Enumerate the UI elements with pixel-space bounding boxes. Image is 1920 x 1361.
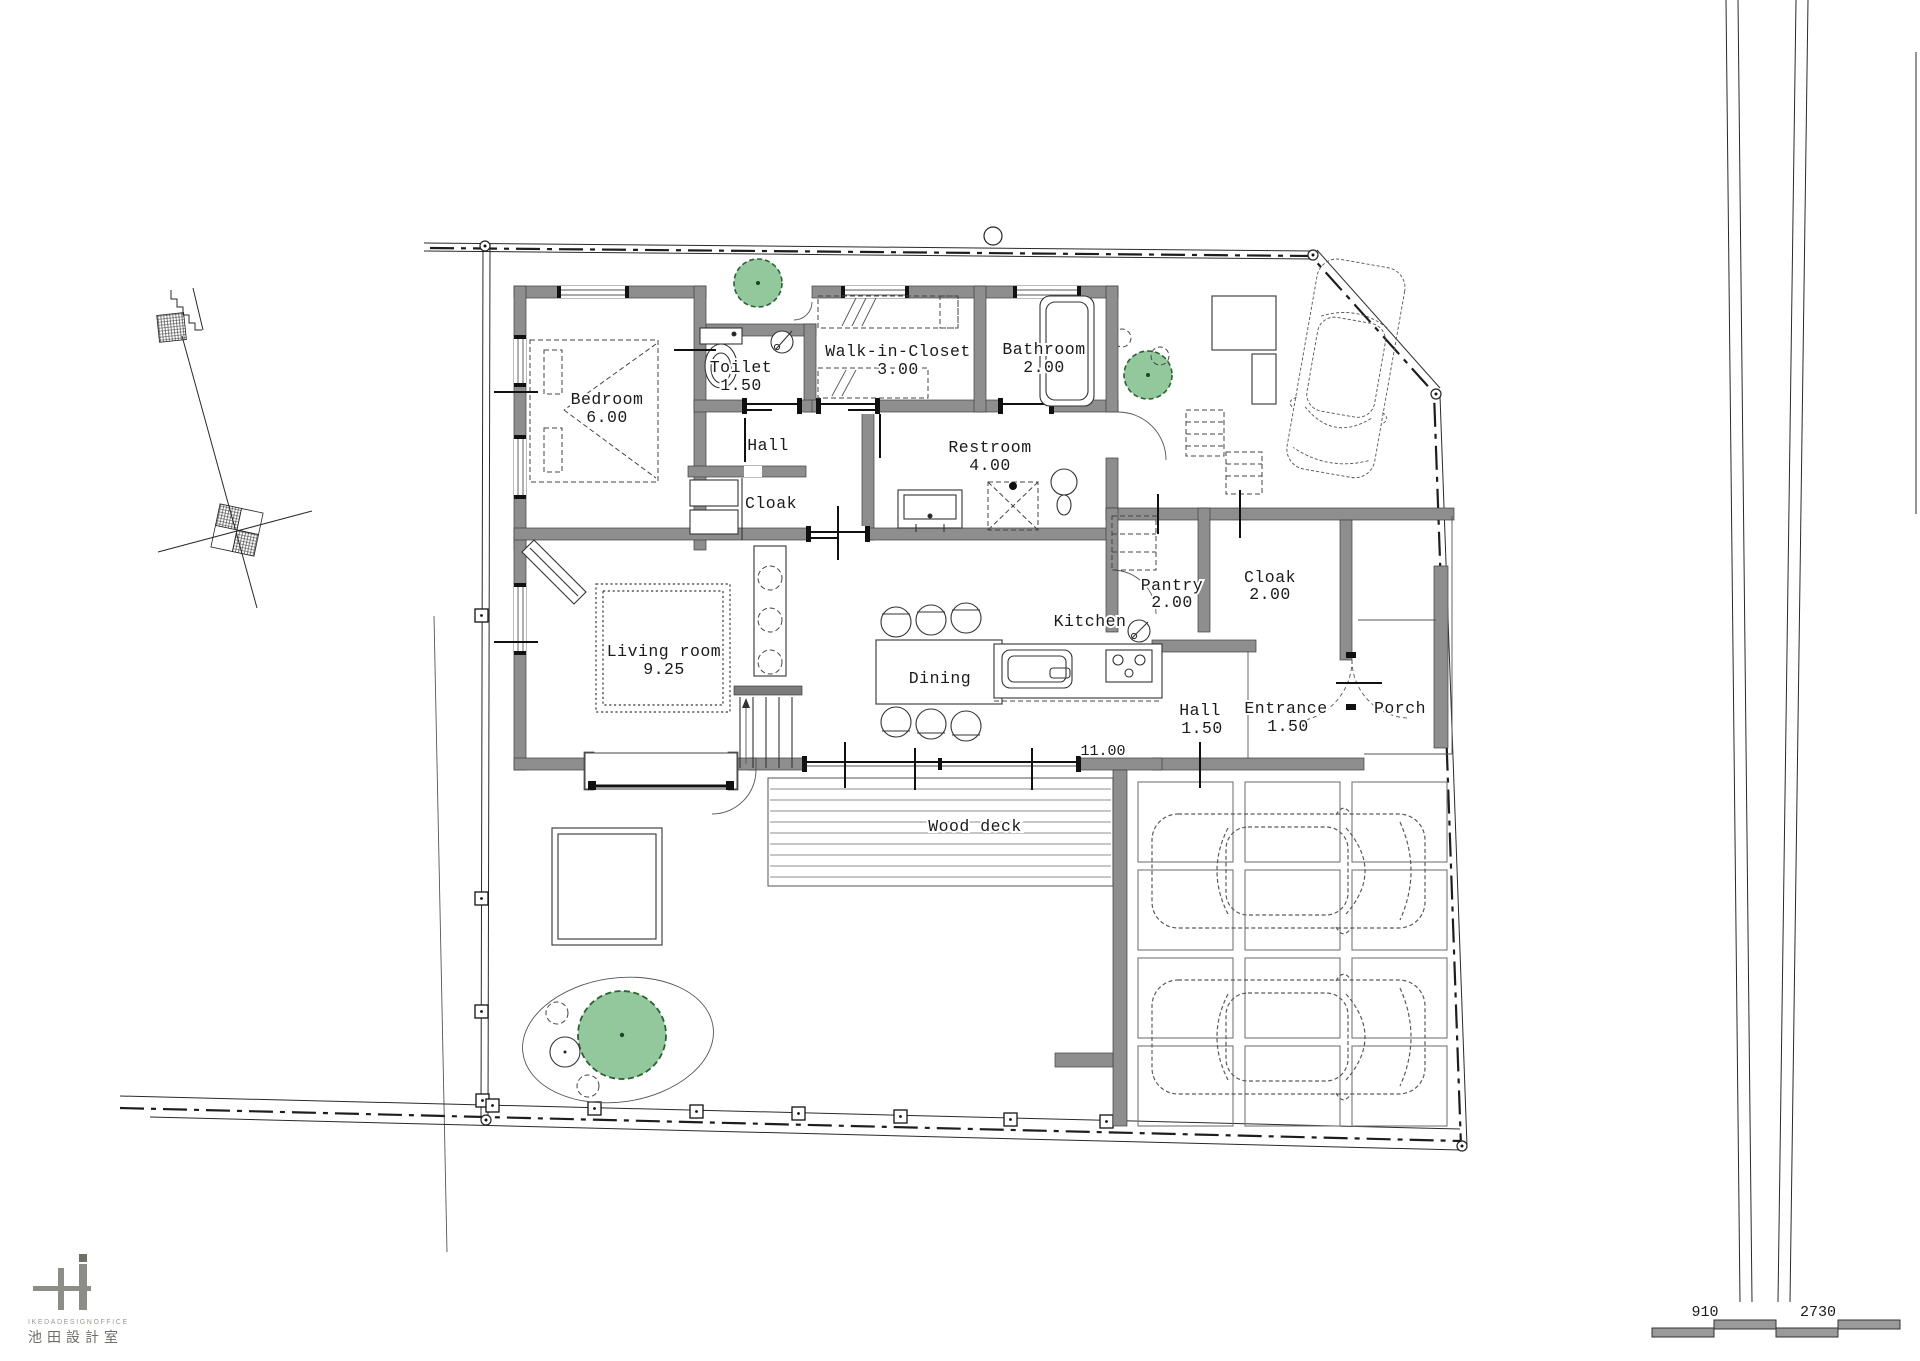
- label-walk-in-closet: Walk-in-Closet: [825, 342, 971, 361]
- label-hall-west: Hall: [747, 436, 789, 455]
- value-entrance: 1.50: [1267, 717, 1309, 736]
- survey-benchmark: [157, 288, 257, 608]
- value-bedroom: 6.00: [586, 408, 628, 427]
- value-hall-entrance: 1.50: [1181, 719, 1223, 738]
- yard-storage: [1212, 296, 1276, 404]
- pantry-shelves: [1112, 516, 1156, 570]
- label-toilet: Toilet: [710, 358, 772, 377]
- office-name-jp: 池田設計室: [28, 1329, 123, 1345]
- stairs: [734, 686, 802, 768]
- label-wood-deck: Wood deck: [928, 817, 1022, 836]
- meter-icon: [1128, 620, 1150, 642]
- restroom-basin: [1051, 469, 1077, 515]
- value-restroom: 4.00: [969, 456, 1011, 475]
- washing-machine: [988, 482, 1038, 530]
- value-toilet: 1.50: [720, 376, 762, 395]
- parked-car-1: [1152, 808, 1425, 934]
- parked-car-3: [1279, 255, 1412, 482]
- kitchen-counter: [994, 644, 1162, 701]
- road-east: [1726, 0, 1916, 1302]
- label-kitchen: Kitchen: [1054, 612, 1127, 631]
- label-bedroom: Bedroom: [571, 390, 644, 409]
- label-hall-entrance: Hall: [1179, 701, 1221, 720]
- scale-bar: 910 2730: [1652, 1304, 1900, 1337]
- bay-window: [585, 753, 737, 790]
- logo-mark-icon: [33, 1254, 91, 1310]
- floor-plan-sheet: Bedroom 6.00 Toilet 1.50 Walk-in-Closet …: [0, 0, 1920, 1361]
- tv-board: [522, 540, 586, 604]
- label-cloak-west: Cloak: [745, 494, 797, 513]
- label-entrance: Entrance: [1244, 699, 1327, 718]
- parking-grid: [1138, 782, 1447, 1126]
- value-cloak-entrance: 2.00: [1249, 585, 1291, 604]
- label-porch: Porch: [1374, 699, 1426, 718]
- shelf-columns: [754, 546, 786, 676]
- office-name-en: IKEDADESIGNOFFICE: [28, 1319, 129, 1326]
- tree-icon: [734, 259, 782, 307]
- road-west: [434, 616, 447, 1252]
- value-bathroom: 2.00: [1023, 358, 1065, 377]
- toilet-basin: [771, 331, 793, 353]
- value-living-room: 9.25: [643, 660, 685, 679]
- scale-label-right: 2730: [1800, 1304, 1836, 1321]
- tree-icon-large: [578, 991, 666, 1079]
- value-walk-in-closet: 3.00: [877, 360, 919, 379]
- garden-planter: [552, 828, 662, 945]
- dimension-opening: 11.00: [1080, 743, 1125, 760]
- label-restroom: Restroom: [948, 438, 1031, 457]
- site-plan-drawing: Bedroom 6.00 Toilet 1.50 Walk-in-Closet …: [0, 0, 1920, 1361]
- value-pantry: 2.00: [1151, 593, 1193, 612]
- washstand: [898, 490, 962, 532]
- parked-car-2: [1152, 974, 1425, 1100]
- tree-icon: [1124, 351, 1172, 399]
- label-bathroom: Bathroom: [1002, 340, 1085, 359]
- sliding-window: [802, 756, 1081, 772]
- office-logo: IKEDADESIGNOFFICE 池田設計室: [28, 1254, 129, 1345]
- cooktop: [1106, 650, 1152, 682]
- label-living-room: Living room: [607, 642, 721, 661]
- yard-gratings: [1186, 410, 1262, 494]
- survey-cross-point: [158, 504, 312, 556]
- label-dining: Dining: [909, 669, 971, 688]
- scale-label-left: 910: [1691, 1304, 1718, 1321]
